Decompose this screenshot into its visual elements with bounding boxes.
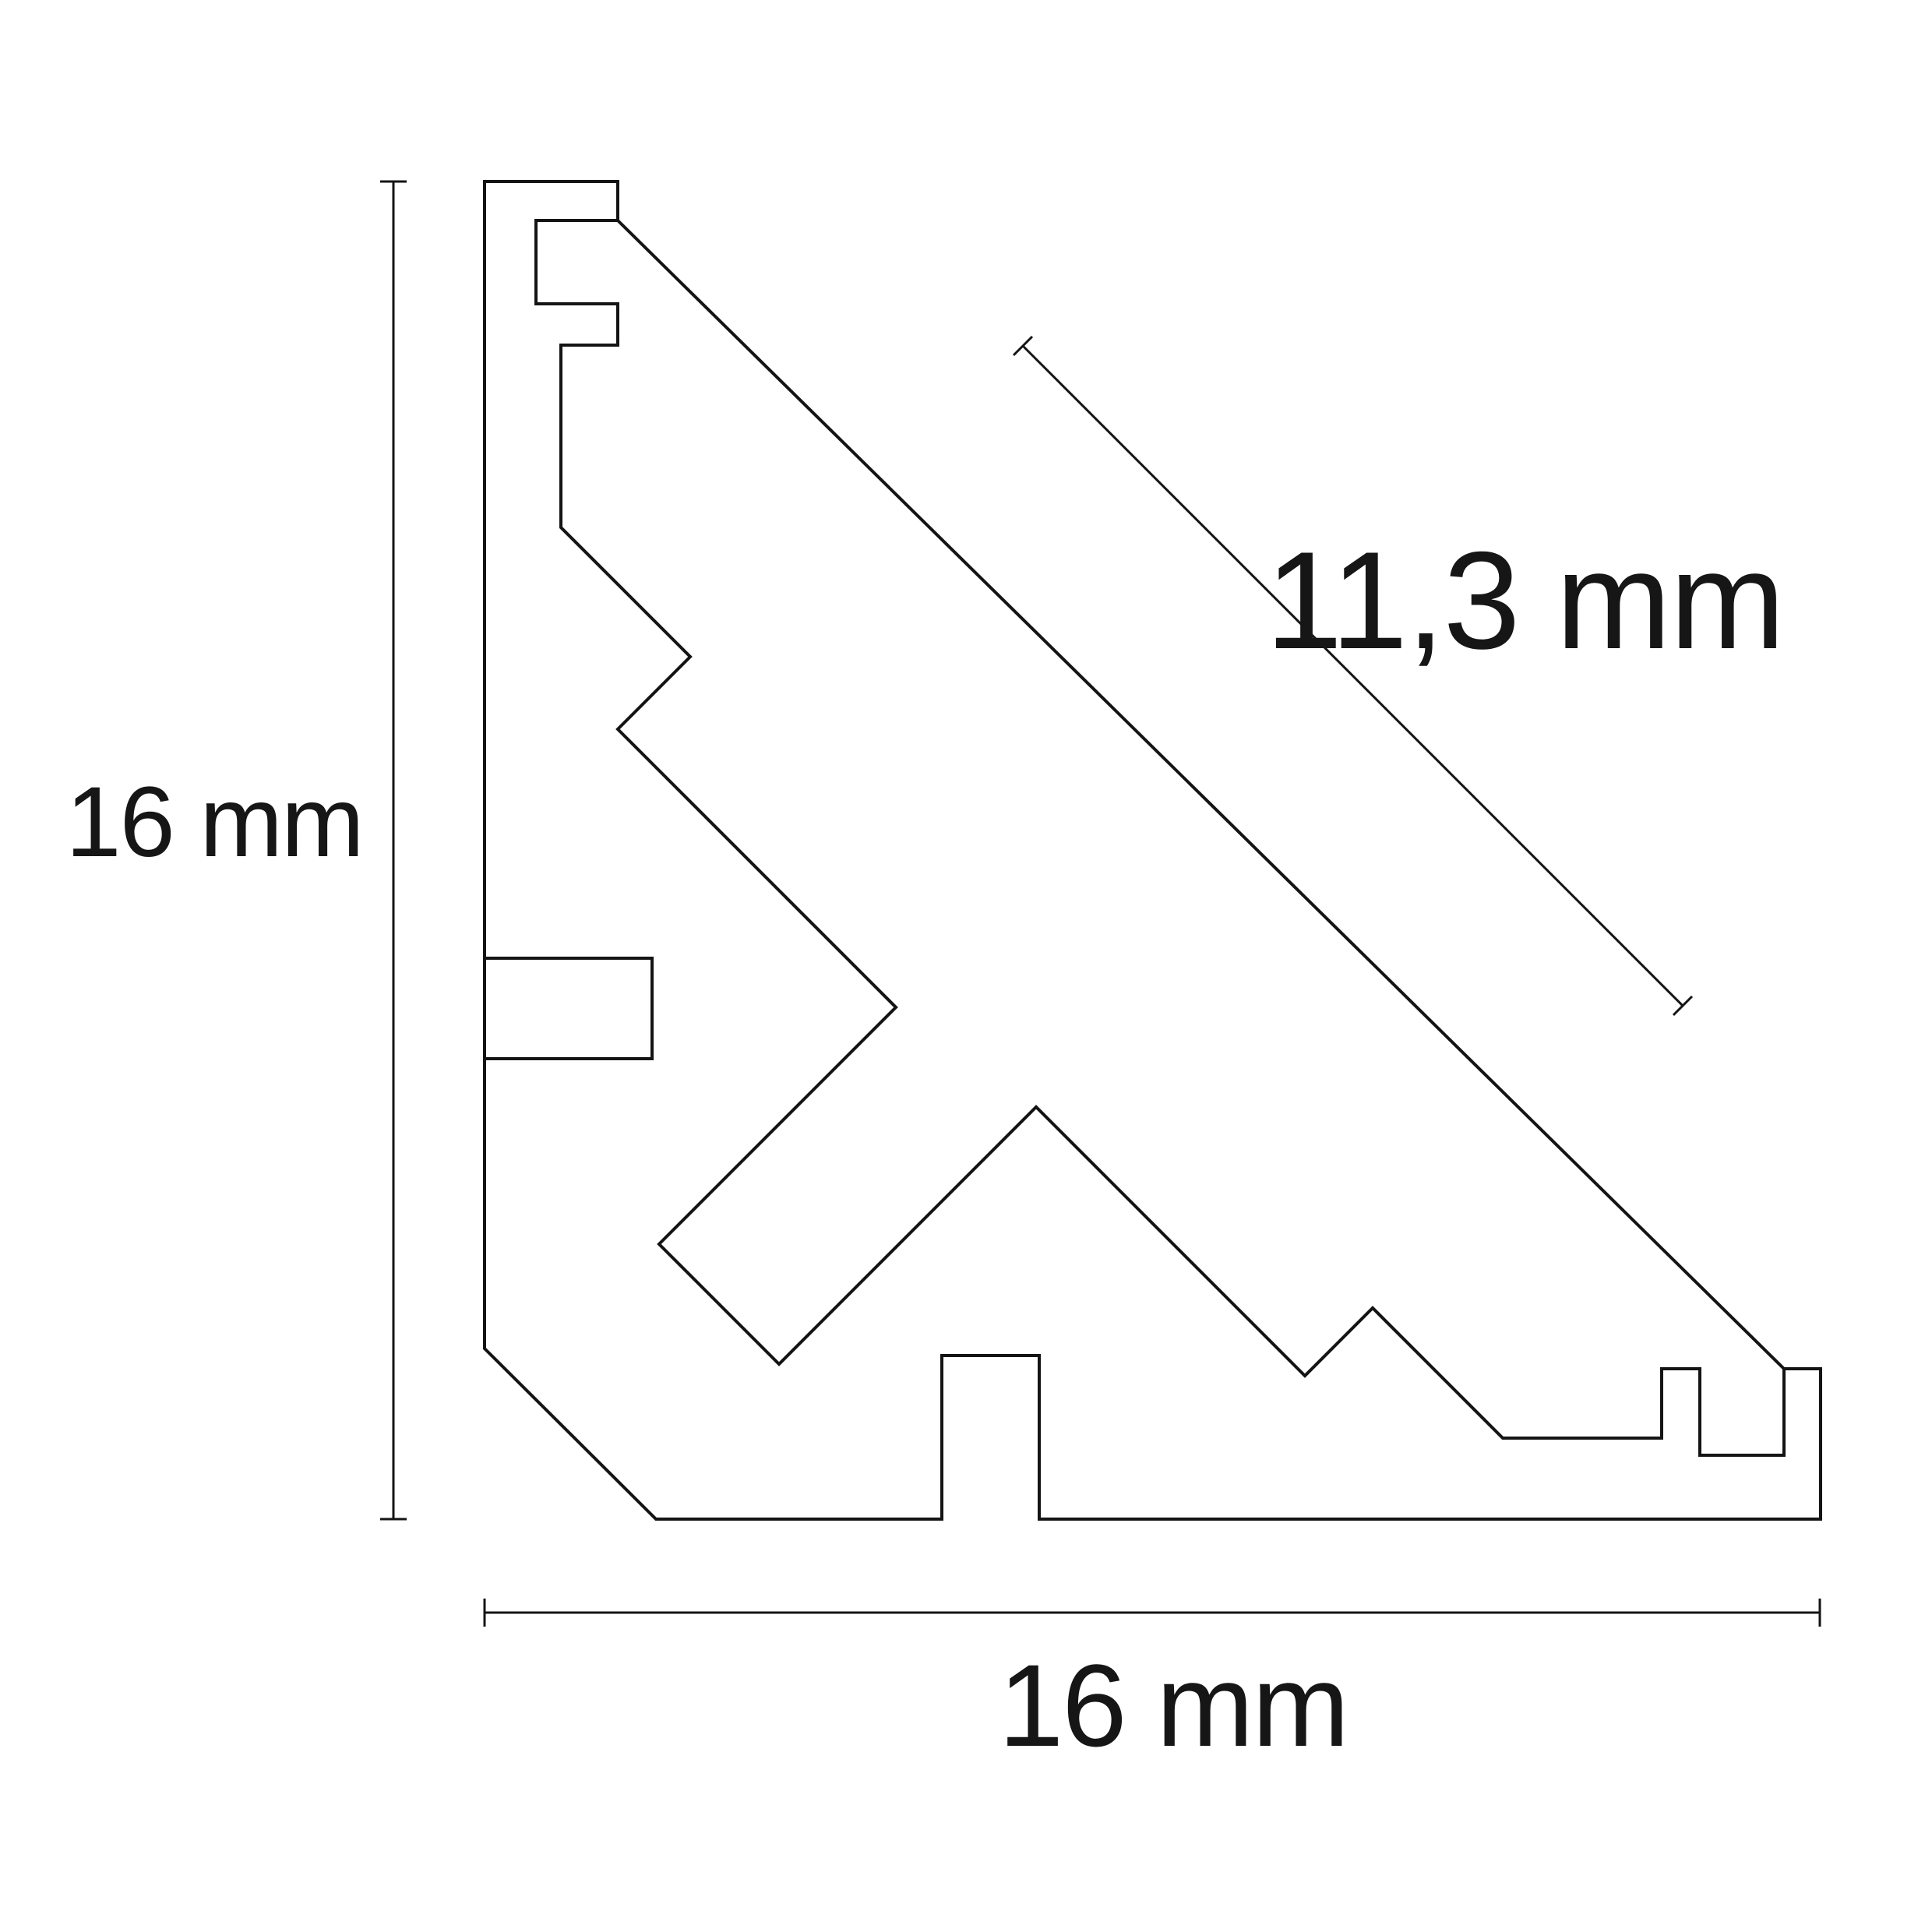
profile-outline — [485, 182, 1821, 1519]
width-dimension-label: 16 mm — [999, 1640, 1348, 1771]
profile-diagram-svg: 16 mm 16 mm 11,3 mm — [0, 0, 1932, 1932]
height-dimension: 16 mm — [65, 182, 407, 1519]
diagonal-dimension-label: 11,3 mm — [1265, 523, 1783, 678]
profile-hypotenuse-edge — [618, 220, 1784, 1369]
drawing-canvas: 16 mm 16 mm 11,3 mm — [0, 0, 1932, 1932]
profile-wall-tab — [485, 958, 652, 1059]
height-dimension-lines — [380, 182, 407, 1519]
height-dimension-label: 16 mm — [65, 767, 362, 878]
width-dimension-lines — [485, 1599, 1820, 1627]
width-dimension: 16 mm — [485, 1599, 1820, 1771]
diagonal-dimension: 11,3 mm — [1014, 337, 1784, 1015]
profile-cross-section — [485, 182, 1821, 1519]
